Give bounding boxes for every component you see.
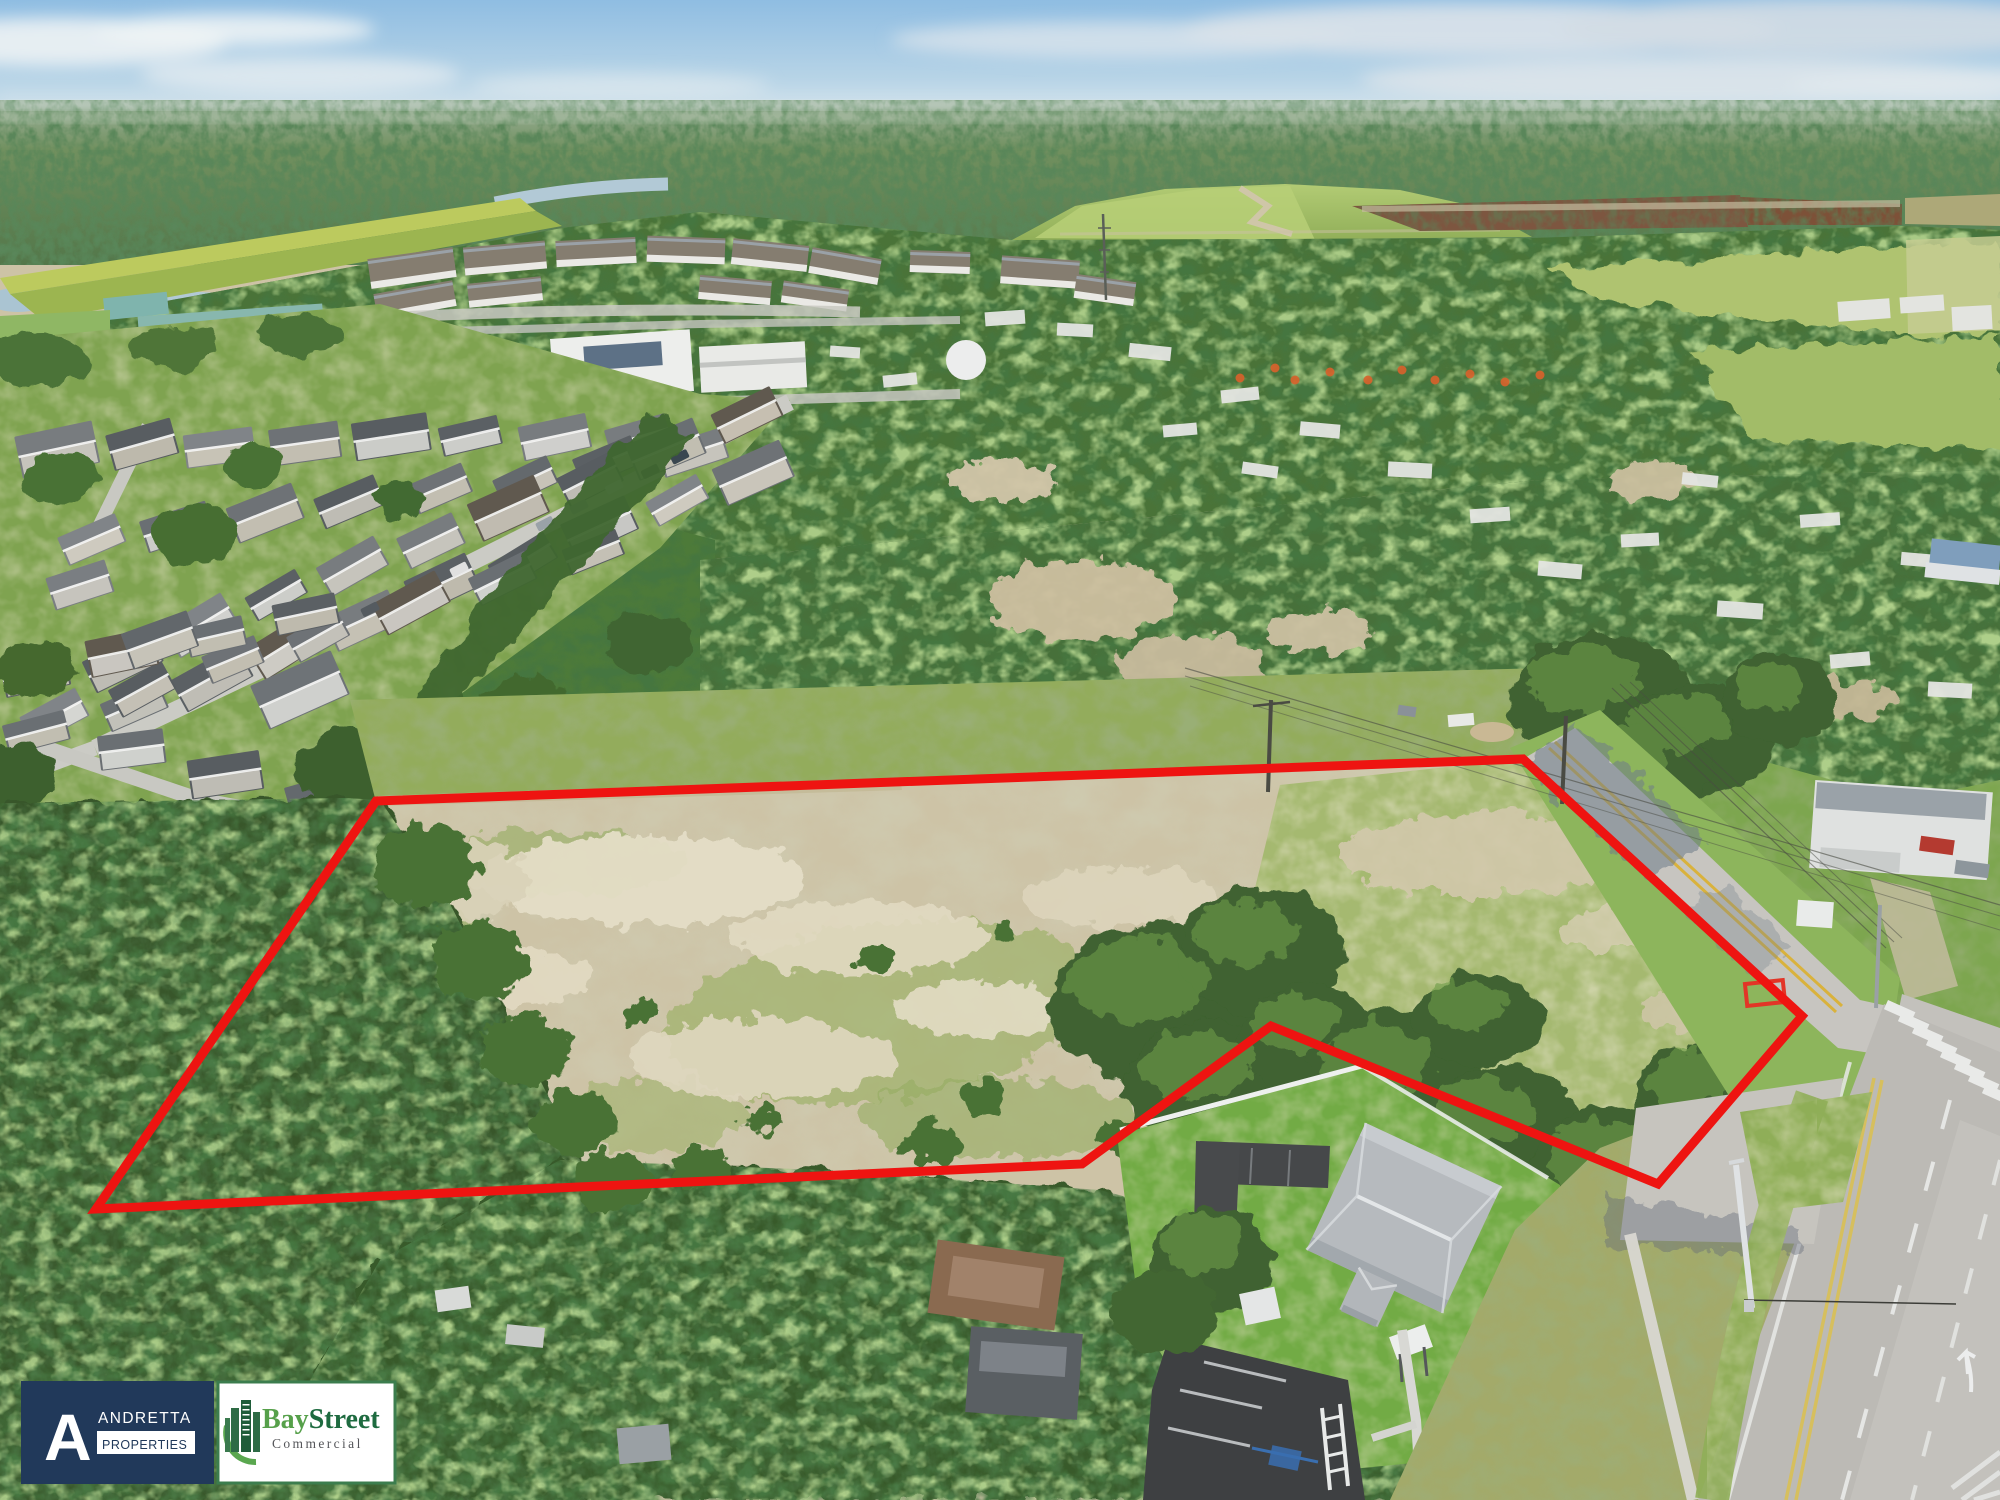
svg-text:A: A xyxy=(44,1400,92,1474)
svg-text:Commercial: Commercial xyxy=(272,1436,363,1451)
svg-text:PROPERTIES: PROPERTIES xyxy=(102,1438,187,1452)
svg-text:ANDRETTA: ANDRETTA xyxy=(98,1410,192,1427)
svg-text:BayStreet: BayStreet xyxy=(262,1404,380,1435)
